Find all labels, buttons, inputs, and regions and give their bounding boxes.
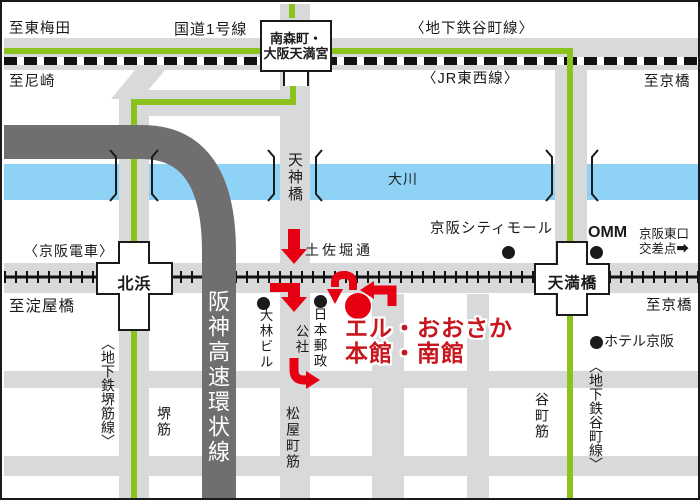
obayashi-building-label: 大林ビル [258,308,272,370]
omm-dot-icon [590,246,603,259]
bridge-mark-icon [316,150,322,201]
sakaisuji-street-label: 堺筋 [157,406,171,438]
minamimorimachi-station-name-line1: 南森町・ [262,31,330,46]
kitahama-station-label: 北浜 [97,270,172,294]
matsuyamachi-suji-label: 松屋町筋 [286,406,300,470]
omm-label: OMM [588,224,627,242]
edge-label-higashi-umeda: 至東梅田 [9,22,71,38]
minamimorimachi-station-stub [283,72,309,86]
temmabashi-station-label: 天満橋 [535,271,610,293]
hotel-keihan-dot-icon [590,336,603,349]
keihan-railway-label: 〈京阪電車〉 [24,244,114,259]
bridge-mark-icon [268,150,274,201]
hanshin-expressway-label: 阪神高速環状線 [206,290,228,465]
bridge-mark-icon [592,150,598,201]
turn-west-arrow-icon [374,290,392,306]
okawa-river-label: 大川 [388,172,418,187]
edge-label-kyobashi-top: 至京橋 [644,75,691,91]
u-turn-arrowhead-icon [327,289,343,304]
minamimorimachi-station-name-line2: 大阪天満宮 [262,46,330,61]
l-osaka-title-line2: 本館・南館 [345,341,465,365]
turn-east-arrowhead-icon [306,371,320,389]
bridge-mark-icon [546,150,552,201]
keihan-east-exit-text: 交差点 [639,242,677,256]
l-osaka-title-line1: エル・おおさか [345,316,513,340]
turn-east-arrow-icon [294,358,306,380]
route1-label: 国道1号線 [174,22,247,39]
tenjinbashi-bridge-label: 天神橋 [287,152,302,203]
road-diagonal-connector [111,70,165,99]
japan-post-label-line1: 日本郵政 [312,307,326,369]
keihan-east-exit-label-line1: 京阪東口 [639,228,689,242]
u-turn-arrow-icon [335,275,353,290]
arrow-down-icon [281,229,307,264]
hotel-keihan-label: ホテル京阪 [604,334,674,349]
minamimorimachi-station-box: 南森町・ 大阪天満宮 [260,20,332,72]
tanimachi-line-top-label: 〈地下鉄谷町線〉 [410,22,534,38]
jr-tozai-line-label: 〈JR東西線〉 [422,72,519,88]
tosabori-dori-label: 土佐堀通 [305,243,373,258]
edge-label-kyobashi-right: 至京橋 [646,299,693,315]
keihan-city-mall-label: 京阪シティモール [430,222,553,238]
japan-post-label-line2: 公社 [294,324,308,355]
tanimachi-line-bottom-label: 〈地下鉄谷町線〉 [589,359,603,471]
edge-label-yodoyabashi: 至淀屋橋 [9,298,75,315]
keihan-east-exit-label-line2: 交差点➡ [639,243,689,257]
sakaisuji-line-label: 〈地下鉄堺筋線〉 [101,336,115,448]
turn-south-arrow-icon [270,283,307,312]
tanimachi-suji-label: 谷町筋 [535,392,549,440]
right-arrow-icon: ➡ [677,242,690,256]
keihan-city-mall-dot-icon [502,246,515,259]
edge-label-amagasaki: 至尼崎 [9,75,56,91]
access-map: 南森町・ 大阪天満宮 至東梅田 国道1号線 〈地下鉄谷町線〉 至尼崎 〈JR東西… [0,0,700,500]
